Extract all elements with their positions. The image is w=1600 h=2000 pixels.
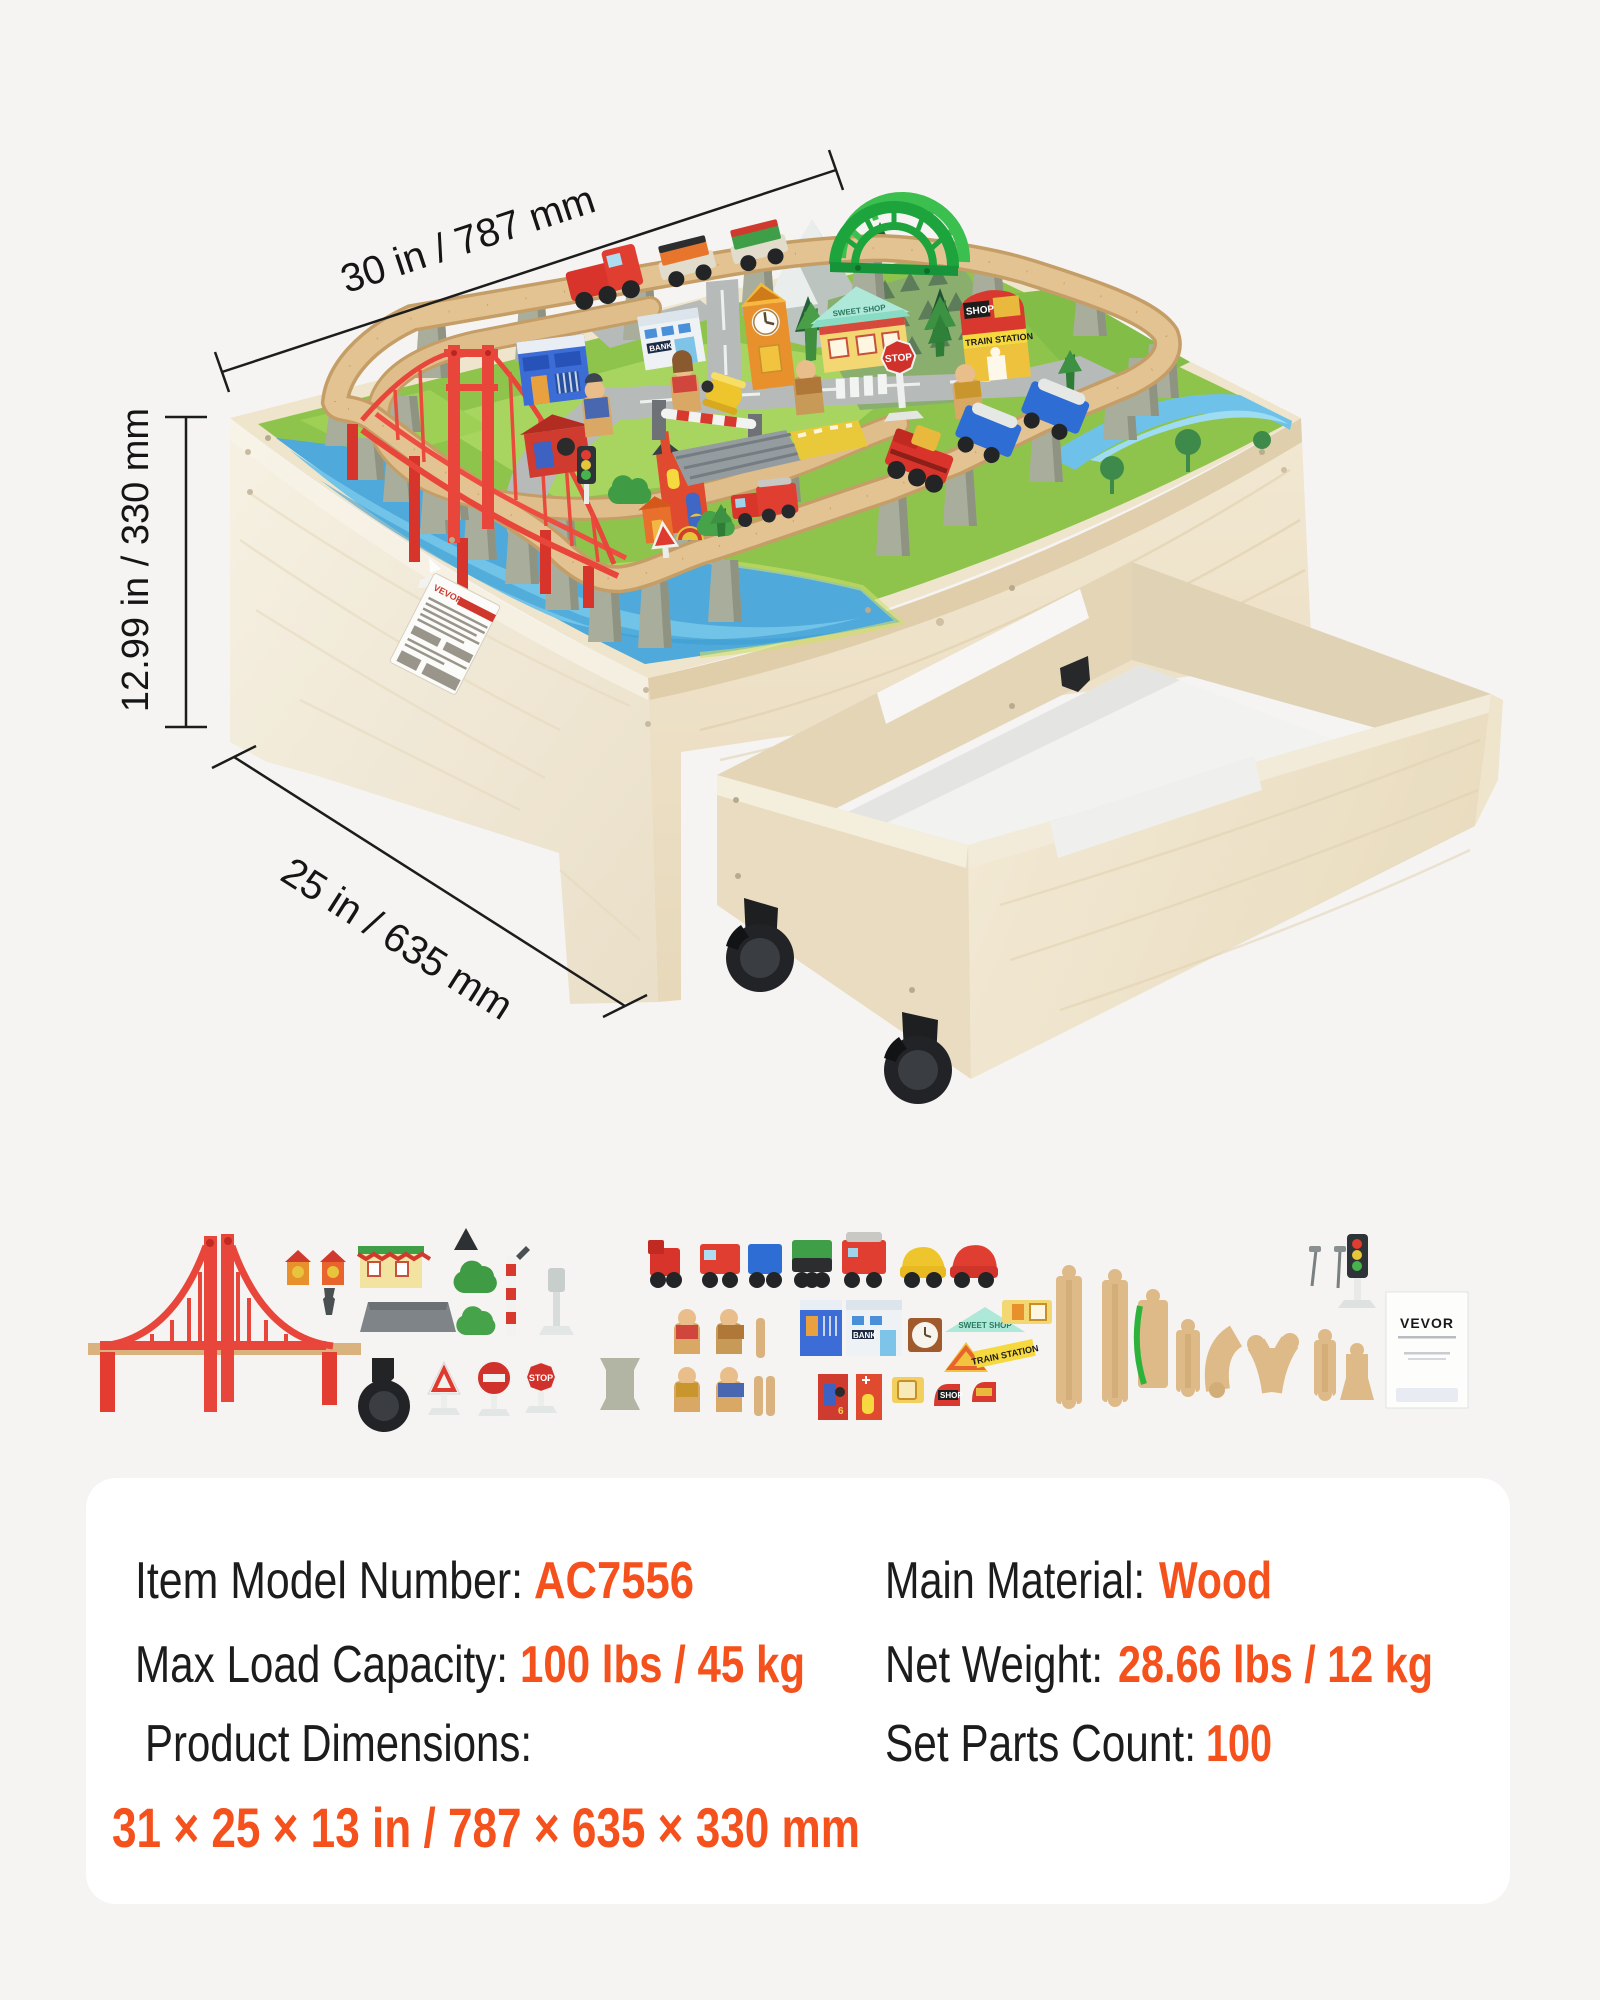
svg-text:28.66 lbs / 12 kg: 28.66 lbs / 12 kg: [1118, 1636, 1433, 1694]
svg-text:Product Dimensions:: Product Dimensions:: [145, 1715, 532, 1773]
svg-text:Main Material:: Main Material:: [885, 1552, 1145, 1610]
svg-text:SHOP: SHOP: [940, 1391, 963, 1400]
svg-text:Max Load Capacity:: Max Load Capacity:: [135, 1636, 508, 1694]
svg-text:STOP: STOP: [529, 1373, 553, 1383]
svg-text:Net Weight:: Net Weight:: [885, 1636, 1103, 1694]
svg-text:Item Model Number:: Item Model Number:: [135, 1552, 523, 1610]
svg-text:AC7556: AC7556: [534, 1552, 694, 1610]
svg-text:31 × 25 × 13 in / 787 × 635 ×: 31 × 25 × 13 in / 787 × 635 × 330 mm: [112, 1796, 860, 1859]
svg-text:100 lbs / 45 kg: 100 lbs / 45 kg: [520, 1636, 805, 1694]
svg-text:6: 6: [838, 1406, 844, 1417]
svg-text:BANK: BANK: [853, 1331, 876, 1340]
svg-text:Wood: Wood: [1159, 1552, 1272, 1610]
svg-text:12.99 in / 330 mm: 12.99 in / 330 mm: [115, 408, 157, 712]
svg-text:100: 100: [1206, 1715, 1272, 1773]
svg-text:Set Parts Count:: Set Parts Count:: [885, 1715, 1196, 1773]
svg-text:VEVOR: VEVOR: [1400, 1315, 1454, 1331]
